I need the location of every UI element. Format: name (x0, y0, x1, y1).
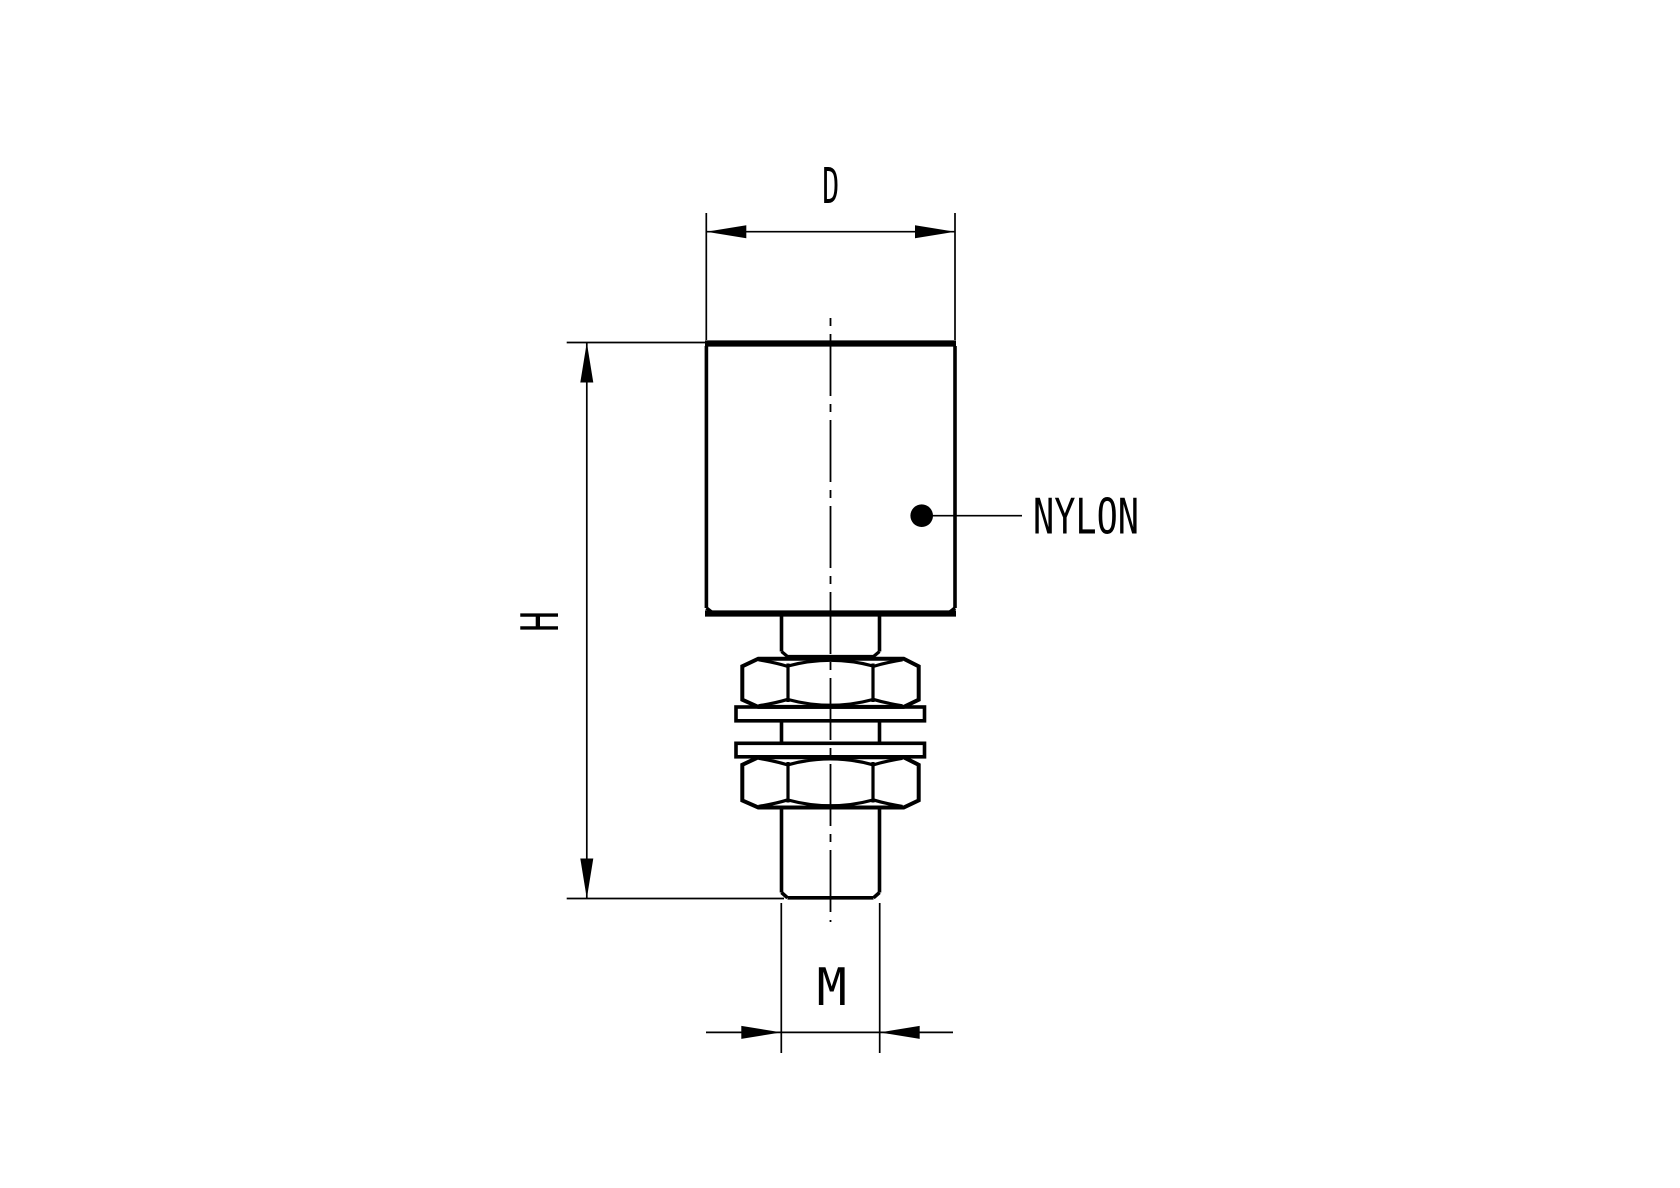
nut-center-arc-top (788, 759, 873, 765)
stud-end-chamfer-right (874, 893, 880, 898)
dimension-h: H (511, 343, 784, 899)
stud-end-chamfer-left (782, 893, 788, 898)
dimension-label-h: H (511, 611, 571, 632)
nut-side-arc-top-right (873, 758, 903, 765)
material-callout: NYLON (910, 489, 1139, 546)
arrowhead-right-icon (741, 1026, 781, 1039)
drawing-page: D H M NYLON (0, 0, 1680, 1188)
nut-side-arc-bottom-right (873, 699, 903, 706)
dimension-label-d: D (822, 158, 839, 215)
nut-side-arc-top-right (873, 660, 903, 667)
arrowhead-up-icon (580, 343, 593, 383)
nut-side-arc-bottom-left (759, 800, 789, 807)
arrowhead-right-icon (915, 225, 955, 238)
nut-side-arc-top-left (759, 758, 789, 765)
arrowhead-left-icon (880, 1026, 920, 1039)
arrowhead-left-icon (706, 225, 746, 238)
technical-drawing-canvas: D H M NYLON (0, 0, 1680, 1188)
nut-side-arc-bottom-right (873, 800, 903, 807)
dimension-d: D (706, 158, 955, 340)
nut-side-arc-top-left (759, 660, 789, 667)
dimension-m: M (706, 903, 953, 1053)
dimension-label-m: M (817, 958, 847, 1018)
material-label: NYLON (1033, 489, 1139, 546)
nut-side-arc-bottom-left (759, 699, 789, 706)
arrowhead-down-icon (580, 859, 593, 899)
